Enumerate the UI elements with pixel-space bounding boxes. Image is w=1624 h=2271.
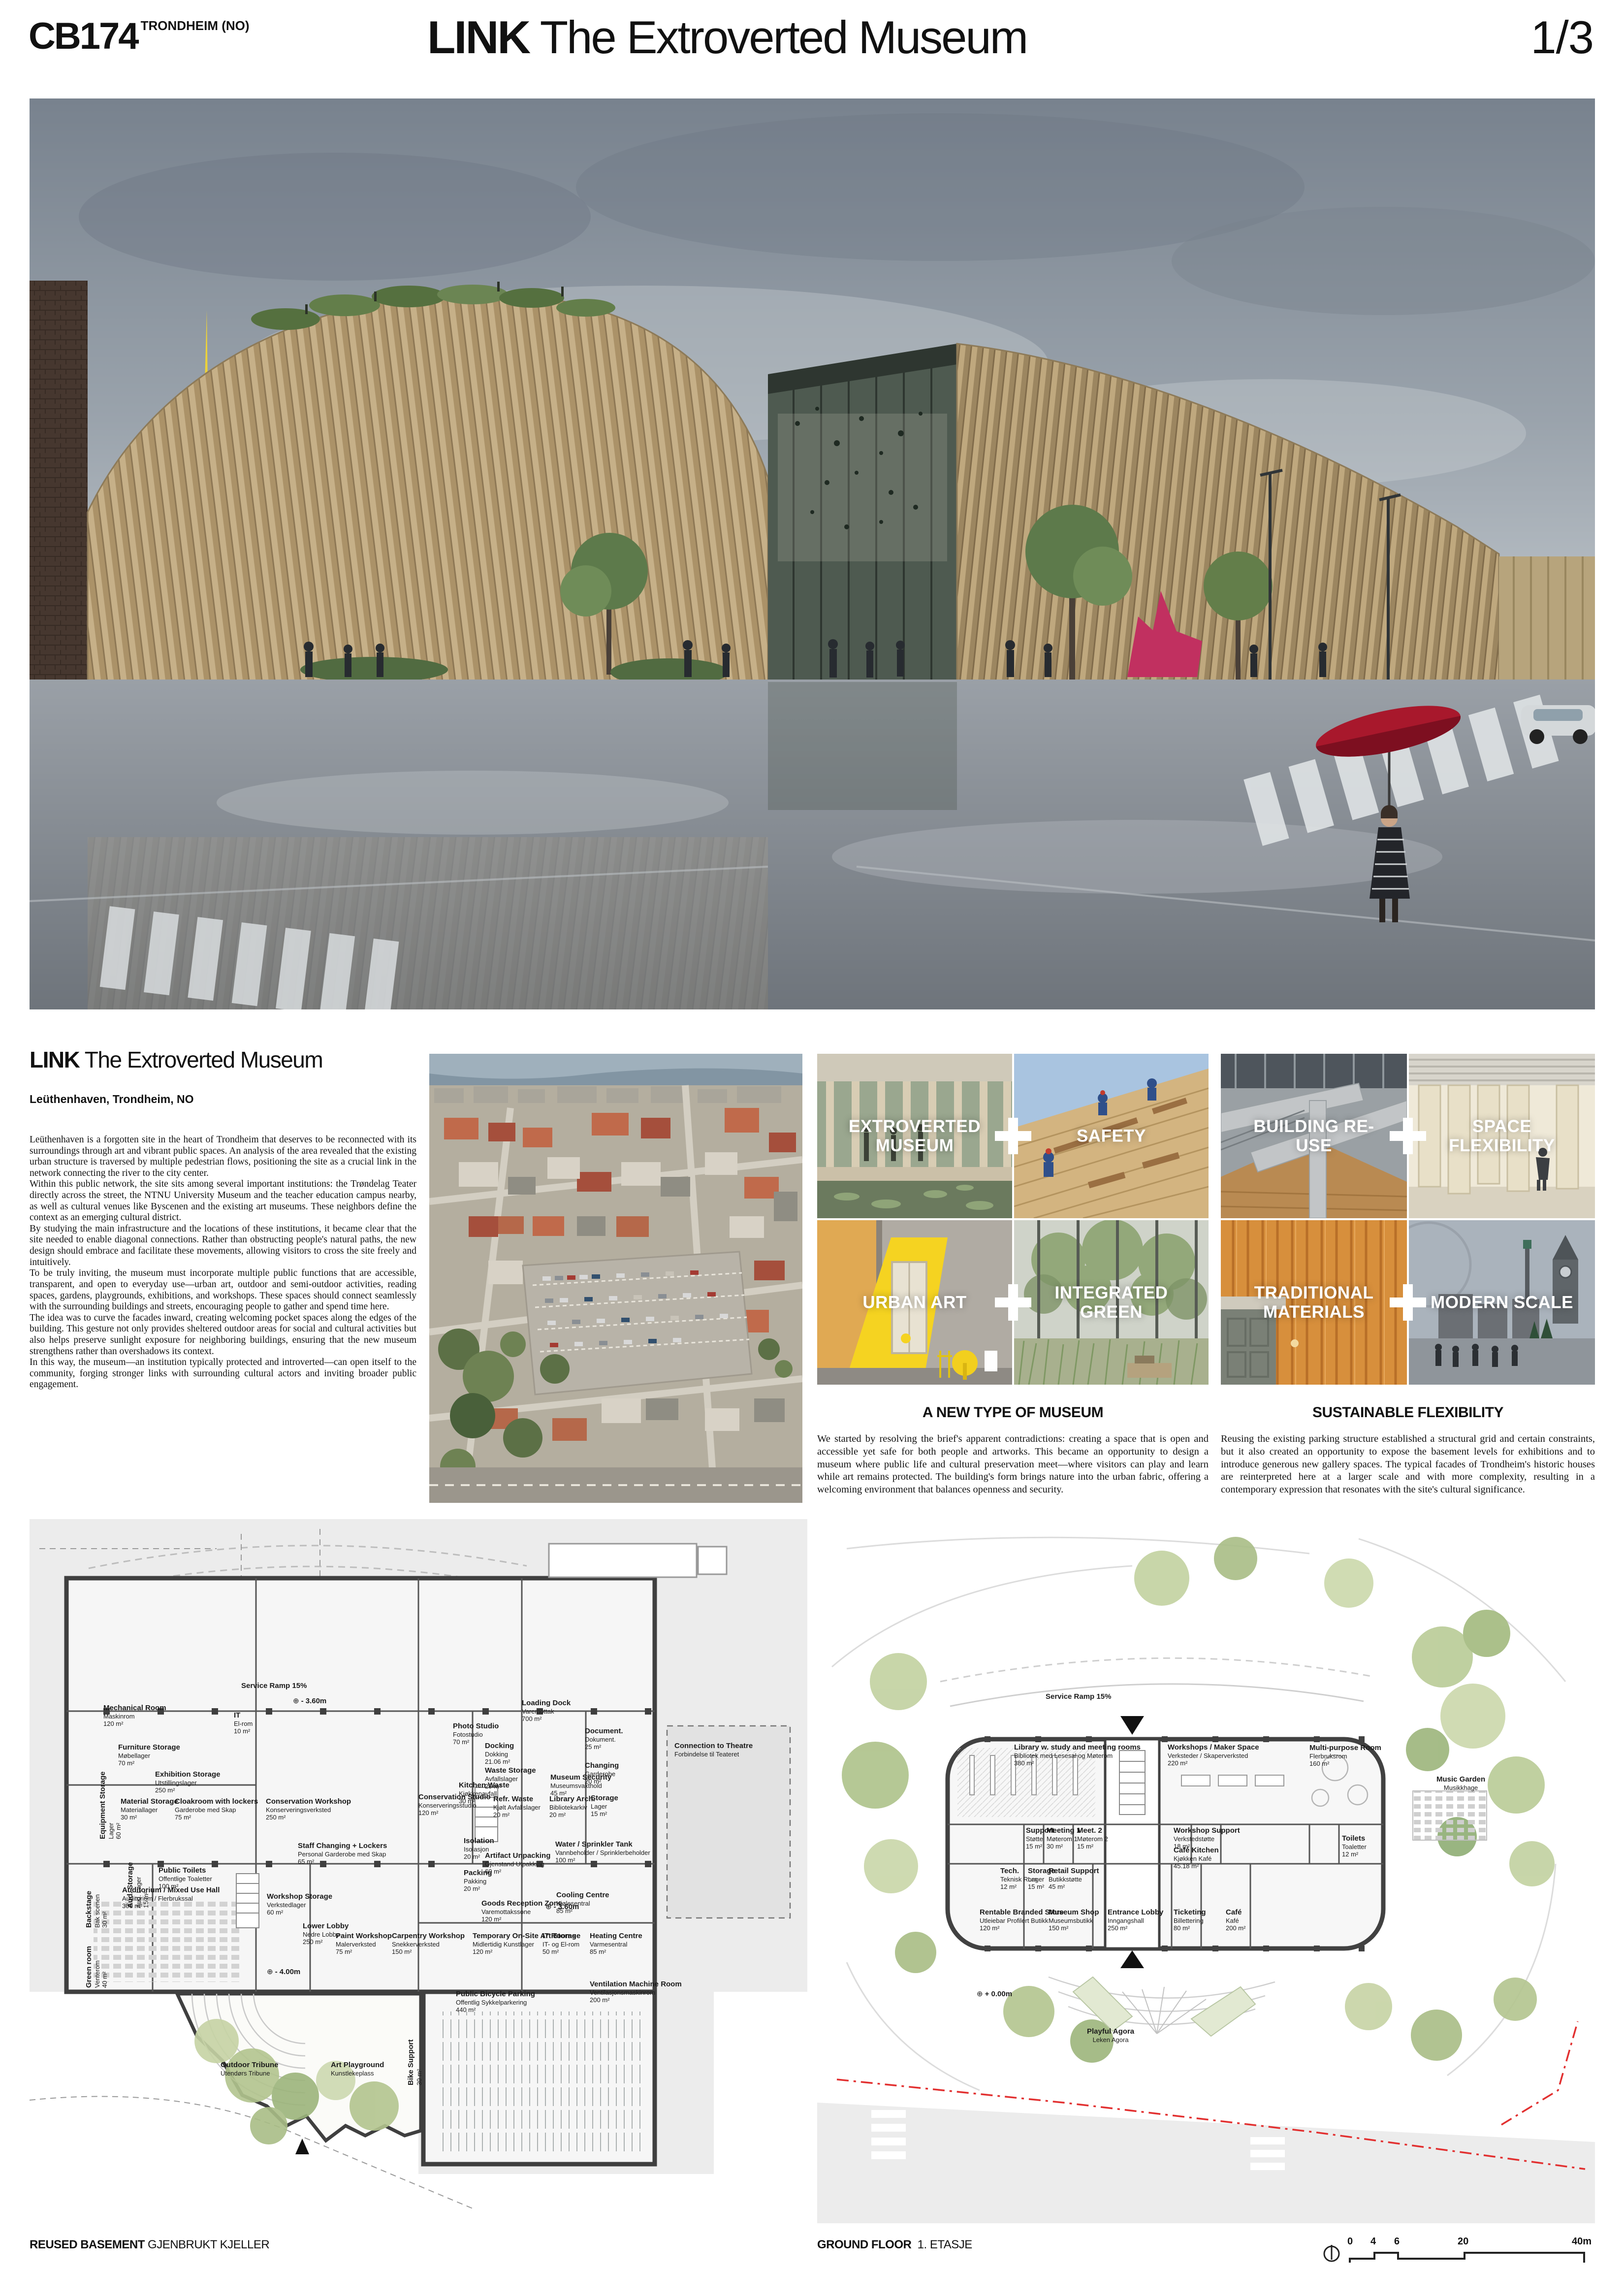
paragraph: To be truly inviting, the museum must in… [30, 1268, 416, 1312]
scale-bar: 0 4 6 20 40m [1322, 2223, 1607, 2268]
scale-tick: 20 [1458, 2236, 1468, 2247]
project-description: Leüthenhaven is a forgotten site in the … [30, 1135, 416, 1391]
board-location: TRONDHEIM (NO) [141, 18, 250, 33]
paragraph: Leüthenhaven is a forgotten site in the … [30, 1135, 416, 1179]
board-title: LINK The Extroverted Museum [427, 11, 1027, 64]
basement-floor-plan: Mechanical RoomMaskinrom120 m² ITEl-rom1… [30, 1519, 807, 2223]
level-marker-icon: ⊕ [267, 1968, 273, 1976]
ground-floor-plan: Library w. study and meeting roomsBiblio… [817, 1519, 1595, 2223]
concept-image-modern-scale: MODERN SCALE [1409, 1220, 1595, 1385]
paragraph: The idea was to curve the facades inward… [30, 1313, 416, 1357]
concept-image-building-reuse: BUILDING RE-USE [1221, 1054, 1407, 1218]
section-heading: A NEW TYPE OF MUSEUM [817, 1404, 1209, 1421]
basement-caption: REUSED BASEMENT GJENBRUKT KJELLER [30, 2238, 269, 2252]
concept-image-space-flexibility: SPACE FLEXIBILITY [1409, 1054, 1595, 1218]
concept-label: INTEGRATED GREEN [1030, 1283, 1193, 1322]
project-intro: LINK The Extroverted Museum Leüthenhaven… [30, 1046, 416, 1391]
concept-label: URBAN ART [833, 1293, 997, 1312]
concept-label: EXTROVERTED MUSEUM [833, 1117, 997, 1155]
ground-caption: GROUND FLOOR 1. ETASJE [817, 2238, 972, 2252]
concept-label: BUILDING RE-USE [1236, 1117, 1392, 1155]
section-new-type-of-museum: A NEW TYPE OF MUSEUM We started by resol… [817, 1404, 1209, 1496]
concept-image-traditional-materials: TRADITIONAL MATERIALS [1221, 1220, 1407, 1385]
concept-image-safety: SAFETY [1014, 1054, 1209, 1218]
board-code: CB174TRONDHEIM (NO) [29, 15, 250, 58]
paragraph: In this way, the museum—an institution t… [30, 1357, 416, 1391]
concept-label: SAFETY [1030, 1126, 1193, 1145]
plus-icon [1390, 1118, 1426, 1154]
project-title: LINK The Extroverted Museum [30, 1046, 416, 1073]
section-body: Reusing the existing parking structure e… [1221, 1433, 1595, 1496]
plus-icon [995, 1118, 1031, 1154]
project-location: Leüthenhaven, Trondheim, NO [30, 1093, 416, 1106]
level-marker-icon: ⊕ [977, 1990, 983, 1998]
concept-image-extroverted-museum: EXTROVERTED MUSEUM [817, 1054, 1012, 1218]
section-sustainable-flexibility: SUSTAINABLE FLEXIBILITY Reusing the exis… [1221, 1404, 1595, 1496]
concept-label: SPACE FLEXIBILITY [1424, 1117, 1580, 1155]
paragraph: By studying the main infrastructure and … [30, 1224, 416, 1268]
plus-icon [995, 1284, 1031, 1321]
hero-render-image [30, 98, 1595, 1009]
concept-image-urban-art: URBAN ART [817, 1220, 1012, 1385]
level-marker-icon: ⊕ [545, 1903, 552, 1911]
scale-tick: 0 [1347, 2236, 1353, 2247]
page-number: 1/3 [1530, 11, 1593, 64]
concept-label: TRADITIONAL MATERIALS [1236, 1283, 1392, 1322]
north-arrow-icon [295, 2139, 309, 2154]
scale-tick: 4 [1370, 2236, 1376, 2247]
section-body: We started by resolving the brief's appa… [817, 1433, 1209, 1496]
scale-tick: 6 [1394, 2236, 1400, 2247]
section-heading: SUSTAINABLE FLEXIBILITY [1221, 1404, 1595, 1421]
scale-tick: 40m [1572, 2236, 1592, 2247]
concept-label: MODERN SCALE [1424, 1293, 1580, 1312]
level-marker-icon: ⊕ [293, 1697, 299, 1705]
paragraph: Within this public network, the site sit… [30, 1179, 416, 1223]
plus-icon [1390, 1284, 1426, 1321]
aerial-photo [429, 1054, 802, 1503]
concept-image-integrated-green: INTEGRATED GREEN [1014, 1220, 1209, 1385]
